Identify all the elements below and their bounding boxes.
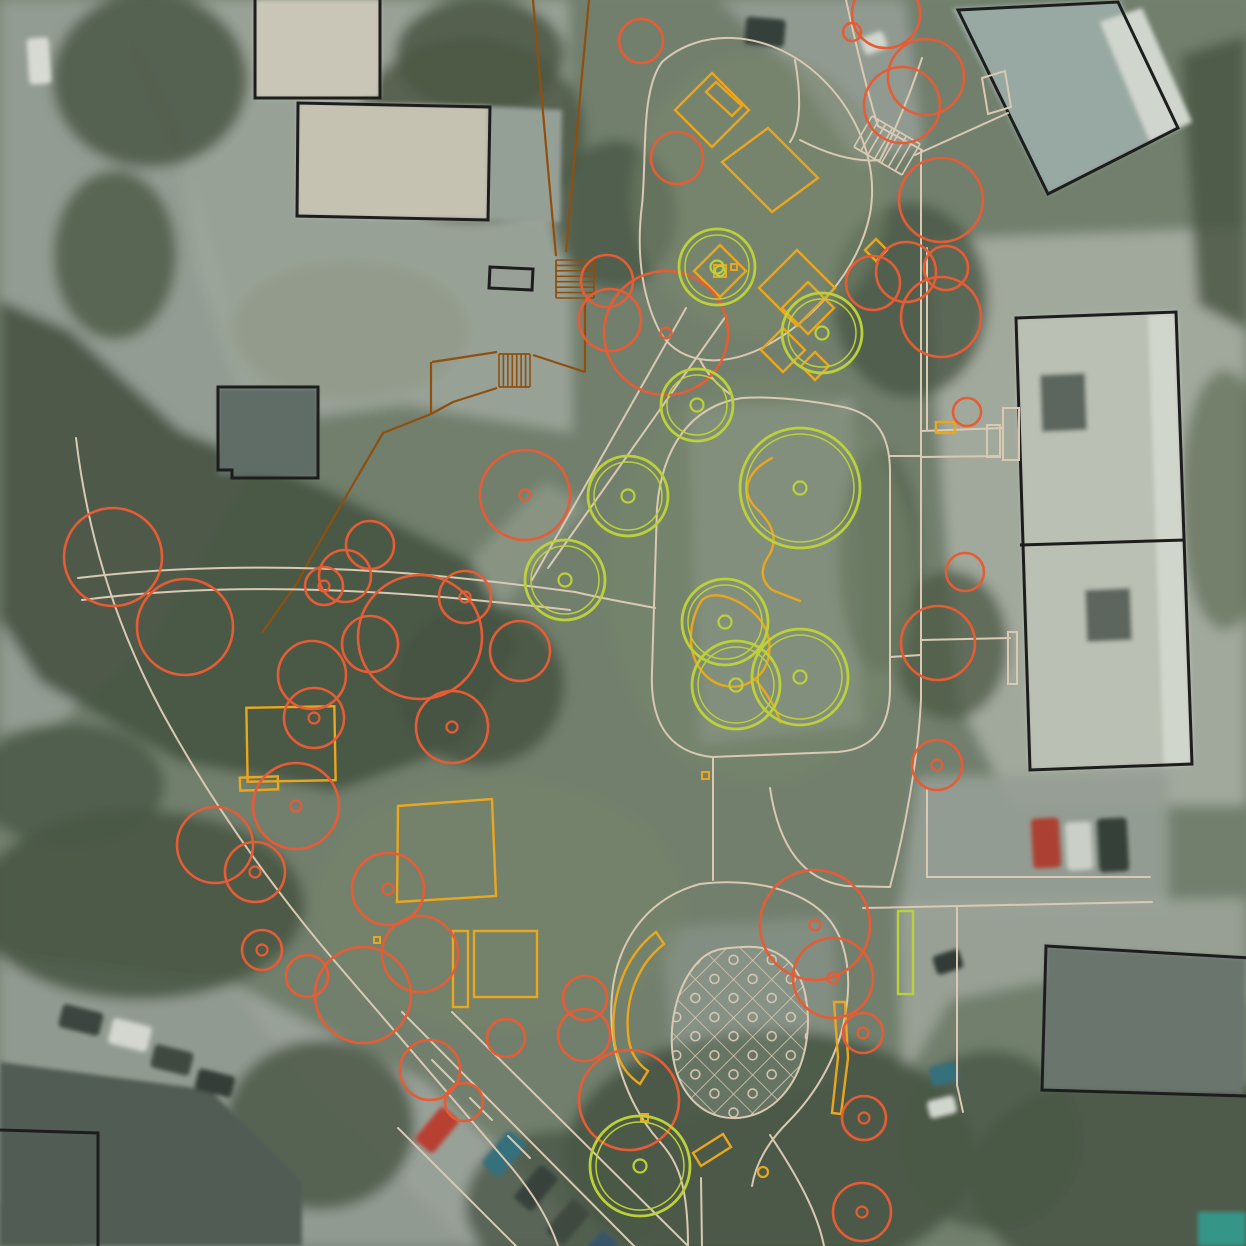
site-plan-map [0, 0, 1246, 1246]
aerial-site-plan-screenshot [0, 0, 1246, 1246]
walkway-line [701, 1178, 702, 1246]
